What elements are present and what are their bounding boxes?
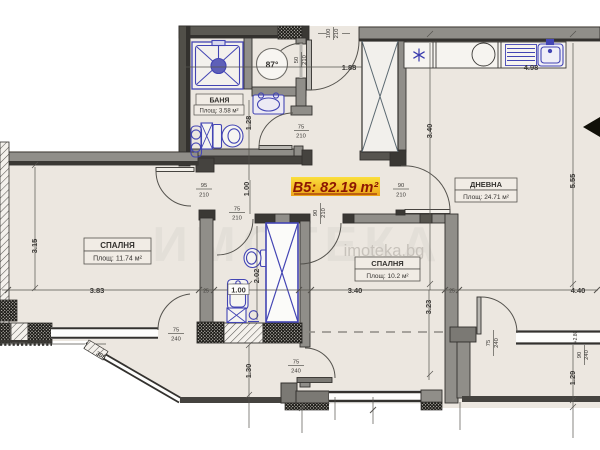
svg-text:3.83: 3.83 — [90, 286, 105, 295]
svg-text:+2.80: +2.80 — [573, 330, 579, 343]
svg-text:210: 210 — [199, 193, 209, 199]
svg-text:75: 75 — [173, 328, 179, 334]
svg-text:Площ: 10.2 м²: Площ: 10.2 м² — [366, 273, 409, 280]
svg-text:50: 50 — [294, 57, 300, 63]
svg-text:75: 75 — [234, 207, 240, 213]
svg-text:75: 75 — [293, 360, 299, 366]
svg-text:90: 90 — [313, 210, 319, 216]
svg-text:3.23: 3.23 — [424, 300, 433, 315]
svg-text:25: 25 — [203, 289, 209, 295]
svg-text:5.55: 5.55 — [568, 174, 577, 189]
svg-text:4.98: 4.98 — [524, 63, 539, 72]
svg-text:90: 90 — [398, 183, 404, 189]
svg-text:4.40: 4.40 — [571, 286, 586, 295]
svg-text:75: 75 — [486, 340, 492, 346]
svg-text:210: 210 — [334, 29, 340, 39]
svg-text:90: 90 — [577, 352, 583, 358]
svg-text:100: 100 — [326, 29, 332, 39]
svg-text:СПАЛНЯ: СПАЛНЯ — [371, 259, 403, 268]
svg-text:87°: 87° — [266, 60, 279, 70]
svg-text:240: 240 — [171, 337, 181, 343]
svg-text:210: 210 — [232, 216, 242, 222]
svg-text:75: 75 — [298, 125, 304, 131]
svg-text:Площ: 3.58 м²: Площ: 3.58 м² — [200, 109, 239, 115]
svg-text:210: 210 — [396, 193, 406, 199]
svg-text:Площ: 24.71 м²: Площ: 24.71 м² — [463, 194, 510, 201]
svg-text:1.00: 1.00 — [231, 286, 246, 295]
svg-text:240: 240 — [291, 369, 301, 375]
svg-text:ДНЕВНА: ДНЕВНА — [470, 180, 503, 189]
svg-text:СПАЛНЯ: СПАЛНЯ — [100, 241, 135, 250]
svg-text:240: 240 — [584, 350, 590, 360]
svg-text:210: 210 — [302, 55, 308, 65]
svg-text:1.28: 1.28 — [244, 116, 253, 131]
svg-text:1.00: 1.00 — [242, 182, 251, 197]
svg-text:БАНЯ: БАНЯ — [210, 98, 230, 105]
svg-text:2.02: 2.02 — [252, 269, 261, 284]
svg-text:240: 240 — [494, 338, 500, 348]
svg-text:3.40: 3.40 — [425, 124, 434, 139]
svg-text:1.29: 1.29 — [568, 371, 577, 386]
svg-text:3.40: 3.40 — [348, 286, 363, 295]
svg-text:25: 25 — [449, 289, 455, 295]
svg-text:3.15: 3.15 — [30, 239, 39, 254]
svg-text:Площ: 11.74 м²: Площ: 11.74 м² — [93, 256, 142, 263]
svg-text:210: 210 — [296, 134, 306, 140]
svg-text:210: 210 — [321, 208, 327, 218]
svg-text:1.88: 1.88 — [342, 63, 357, 72]
svg-text:1.30: 1.30 — [244, 364, 253, 379]
svg-text:95: 95 — [201, 183, 207, 189]
